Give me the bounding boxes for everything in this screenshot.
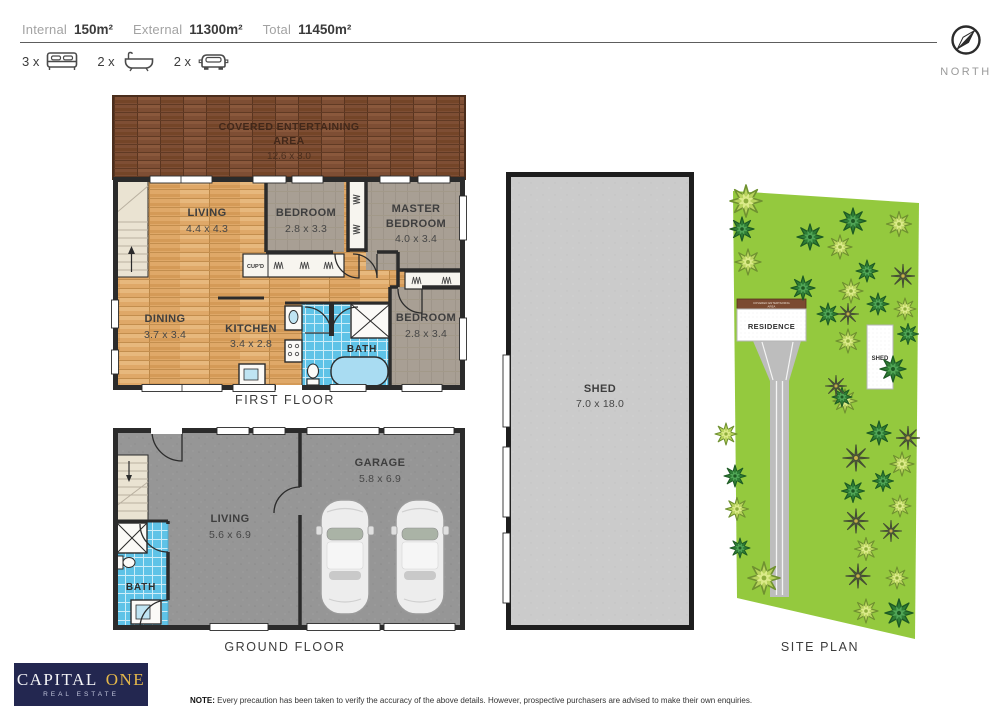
bath-label: BATH (347, 344, 377, 355)
tree-icon (881, 521, 902, 542)
bath-label: BATH (126, 582, 156, 593)
disclaimer-note: NOTE: Every precaution has been taken to… (190, 696, 890, 705)
door-opening (151, 428, 182, 434)
site-residence-label: RESIDENCE (748, 322, 795, 331)
master-dims: 4.0 x 3.4 (395, 233, 437, 245)
logo-tagline: REAL ESTATE (43, 691, 119, 698)
tree-icon (886, 567, 908, 589)
tree-icon (797, 224, 823, 250)
tree-icon (730, 538, 750, 558)
site-plan-title: SITE PLAN (781, 640, 859, 654)
ground-floor-plan: BATH (115, 428, 463, 655)
kitchen-label: KITCHEN (225, 323, 277, 335)
tree-icon (730, 217, 754, 241)
tree-icon (748, 562, 780, 594)
tree-icon (867, 421, 891, 445)
deck-dims: 12.6 x 3.0 (267, 151, 311, 162)
tree-icon (889, 495, 911, 517)
cupboard-label: CUP'D (247, 264, 264, 270)
site-deck-label-2: AREA (768, 304, 776, 308)
bedroom2-label: BEDROOM (276, 207, 336, 219)
tree-icon (897, 427, 920, 450)
stairs-first-floor (115, 181, 148, 277)
first-floor-plan: COVERED ENTERTAINING AREA 12.6 x 3.0 (112, 96, 467, 407)
door-opening (276, 385, 302, 391)
tree-icon (836, 329, 860, 353)
note-prefix: NOTE: (190, 696, 215, 705)
bathroom-ground-floor: BATH (115, 521, 168, 626)
living-label: LIVING (210, 513, 249, 525)
north-label: NORTH (940, 66, 991, 78)
tree-icon (828, 235, 852, 259)
agency-logo: CAPITALONE REAL ESTATE (14, 663, 148, 706)
tree-icon (894, 298, 916, 320)
note-body: Every precaution has been taken to verif… (217, 696, 752, 705)
bedroom3-dims: 2.8 x 3.4 (405, 328, 447, 340)
tree-icon (880, 356, 906, 382)
tree-icon (840, 208, 866, 234)
tree-icon (791, 276, 815, 300)
living-dims: 5.6 x 6.9 (209, 529, 251, 541)
tree-icon (873, 471, 894, 492)
covered-entertaining-area: COVERED ENTERTAINING AREA 12.6 x 3.0 (113, 96, 465, 179)
first-floor-title: FIRST FLOOR (235, 393, 335, 407)
tree-icon (838, 304, 859, 325)
bathroom-first-floor: BATH (302, 304, 390, 388)
tree-icon (898, 324, 919, 345)
floorplan-page: Internal 150m² External 11300m² Total 11… (0, 0, 1000, 713)
stove (285, 340, 302, 362)
logo-one: ONE (106, 670, 145, 689)
cupboard-row: CUP'D (243, 254, 344, 277)
hall-closet (348, 181, 366, 250)
tree-icon (826, 376, 847, 397)
kitchen-dims: 3.4 x 2.8 (230, 338, 272, 350)
site-shed: SHED (867, 325, 893, 389)
north-compass: NORTH (940, 27, 991, 79)
tree-icon (892, 265, 915, 288)
tree-icon (844, 509, 868, 533)
deck-label-line2: AREA (273, 135, 304, 147)
site-deck-label-1: COVERED ENTERTAINING (753, 301, 790, 305)
logo-wordmark: CAPITALONE (17, 671, 145, 688)
tree-icon (843, 445, 869, 471)
living-dims: 4.4 x 4.3 (186, 223, 228, 235)
deck-label-line1: COVERED ENTERTAINING (219, 121, 360, 133)
dining-dims: 3.7 x 3.4 (144, 329, 186, 341)
kitchen-sink (289, 311, 298, 324)
garage-dims: 5.8 x 6.9 (359, 473, 401, 485)
tree-icon (846, 564, 870, 588)
tree-icon (890, 452, 914, 476)
shed-plan: SHED 7.0 x 18.0 (503, 175, 692, 628)
tree-icon (839, 279, 863, 303)
logo-capital: CAPITAL (17, 670, 98, 689)
car-2 (391, 500, 449, 614)
tree-icon (887, 212, 912, 237)
toilet (307, 364, 319, 385)
bathtub (331, 357, 388, 386)
master-label-2: BEDROOM (386, 218, 446, 230)
floorplan-drawing: COVERED ENTERTAINING AREA 12.6 x 3.0 (0, 0, 1000, 713)
shed-label: SHED (584, 383, 616, 395)
tree-icon (730, 185, 762, 217)
site-residence: COVERED ENTERTAINING AREA RESIDENCE (737, 299, 806, 341)
bedroom2-dims: 2.8 x 3.3 (285, 223, 327, 235)
bedroom3-label: BEDROOM (396, 312, 456, 324)
tree-icon (867, 293, 889, 315)
master-label-1: MASTER (392, 203, 441, 215)
tree-icon (726, 498, 749, 521)
site-plan: COVERED ENTERTAINING AREA RESIDENCE SHED… (715, 185, 920, 654)
tree-icon (842, 480, 865, 503)
living-label: LIVING (187, 207, 226, 219)
tree-icon (885, 599, 913, 627)
tree-icon (855, 538, 878, 561)
tree-icon (715, 423, 737, 445)
car-1 (316, 500, 374, 614)
tree-icon (735, 249, 761, 275)
tree-icon (724, 465, 746, 487)
garage-label: GARAGE (355, 457, 406, 469)
tree-icon (817, 303, 839, 325)
dining-label: DINING (145, 313, 186, 325)
ground-floor-title: GROUND FLOOR (224, 640, 345, 654)
tree-icon (854, 599, 878, 623)
shed-dims: 7.0 x 18.0 (576, 398, 624, 410)
tree-icon (856, 260, 878, 282)
stairs-ground-floor (115, 455, 148, 521)
toilet (117, 556, 135, 569)
